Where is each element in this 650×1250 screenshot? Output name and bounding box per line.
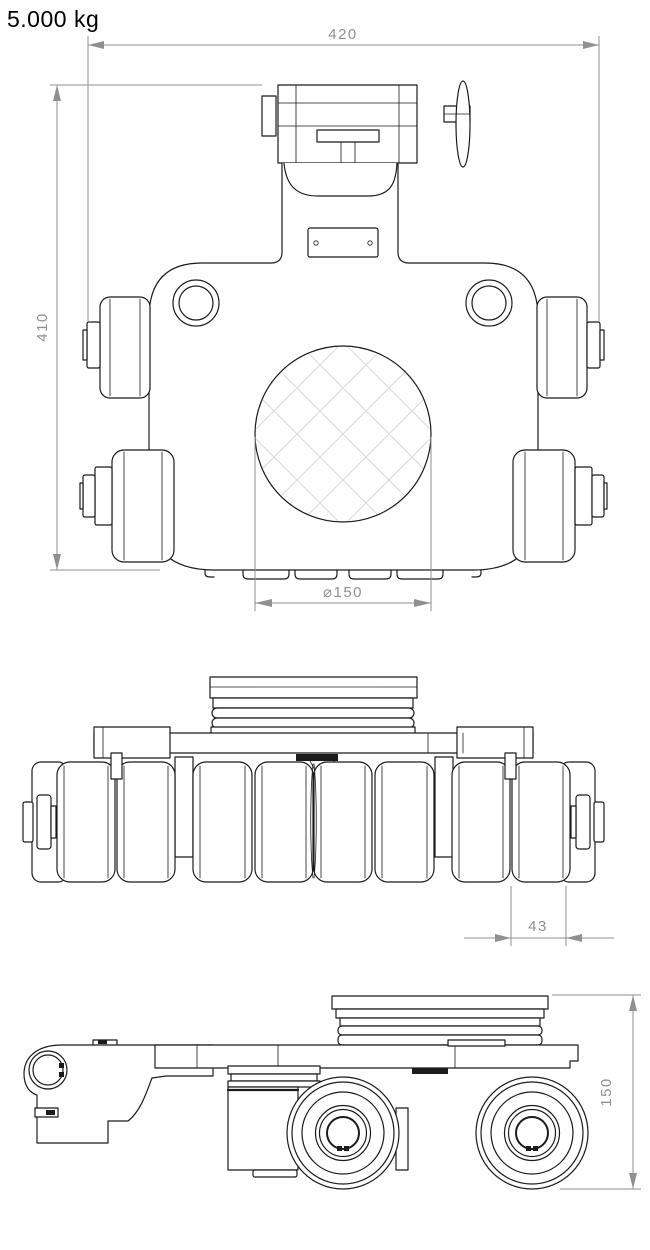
- dim-label-150: 150: [598, 1077, 615, 1107]
- side-roller-lower-right: [513, 450, 607, 562]
- swivel-stack-side: [332, 996, 548, 1045]
- roller-hanger-left: [111, 753, 122, 779]
- bottom-roller-tabs: [205, 570, 481, 579]
- coupling-frame: [278, 85, 417, 163]
- side-roller-upper-right: [537, 297, 604, 398]
- nameplate: [308, 228, 378, 257]
- axle-cap-right: [571, 795, 604, 849]
- handwheel: [444, 81, 470, 167]
- dim-label-43: 43: [528, 918, 548, 935]
- technical-drawing: 420 410 ⌀150: [0, 0, 650, 1250]
- deck-side: [155, 1040, 578, 1074]
- dim-label-410: 410: [34, 312, 51, 342]
- dim-label-diameter-150: ⌀150: [323, 584, 363, 601]
- coupling-left-tab: [262, 96, 276, 136]
- dimension-roller-width: 43: [464, 886, 614, 946]
- swivel-stack-front: [210, 677, 417, 734]
- center-pivot-fitting: [296, 754, 338, 761]
- drawing-canvas: 5.000 kg: [0, 0, 650, 1250]
- roller-post-right: [435, 757, 453, 857]
- main-plate: [149, 163, 538, 570]
- top-view: 420 410 ⌀150: [34, 26, 607, 614]
- roller-post-left: [175, 757, 193, 857]
- side-view: 150: [24, 995, 641, 1189]
- front-rollers: [57, 762, 570, 882]
- front-view: 43: [23, 677, 614, 946]
- roller-hanger-right: [505, 753, 516, 779]
- axle-cap-left: [23, 795, 56, 849]
- side-roller-lower-left: [80, 450, 174, 562]
- dim-label-420: 420: [328, 26, 358, 43]
- wheel-rear: [476, 1077, 588, 1189]
- roller-row: [23, 753, 604, 882]
- deck-under-tab: [412, 1068, 448, 1074]
- side-roller-upper-left: [83, 297, 150, 398]
- wheel-front: [287, 1077, 399, 1189]
